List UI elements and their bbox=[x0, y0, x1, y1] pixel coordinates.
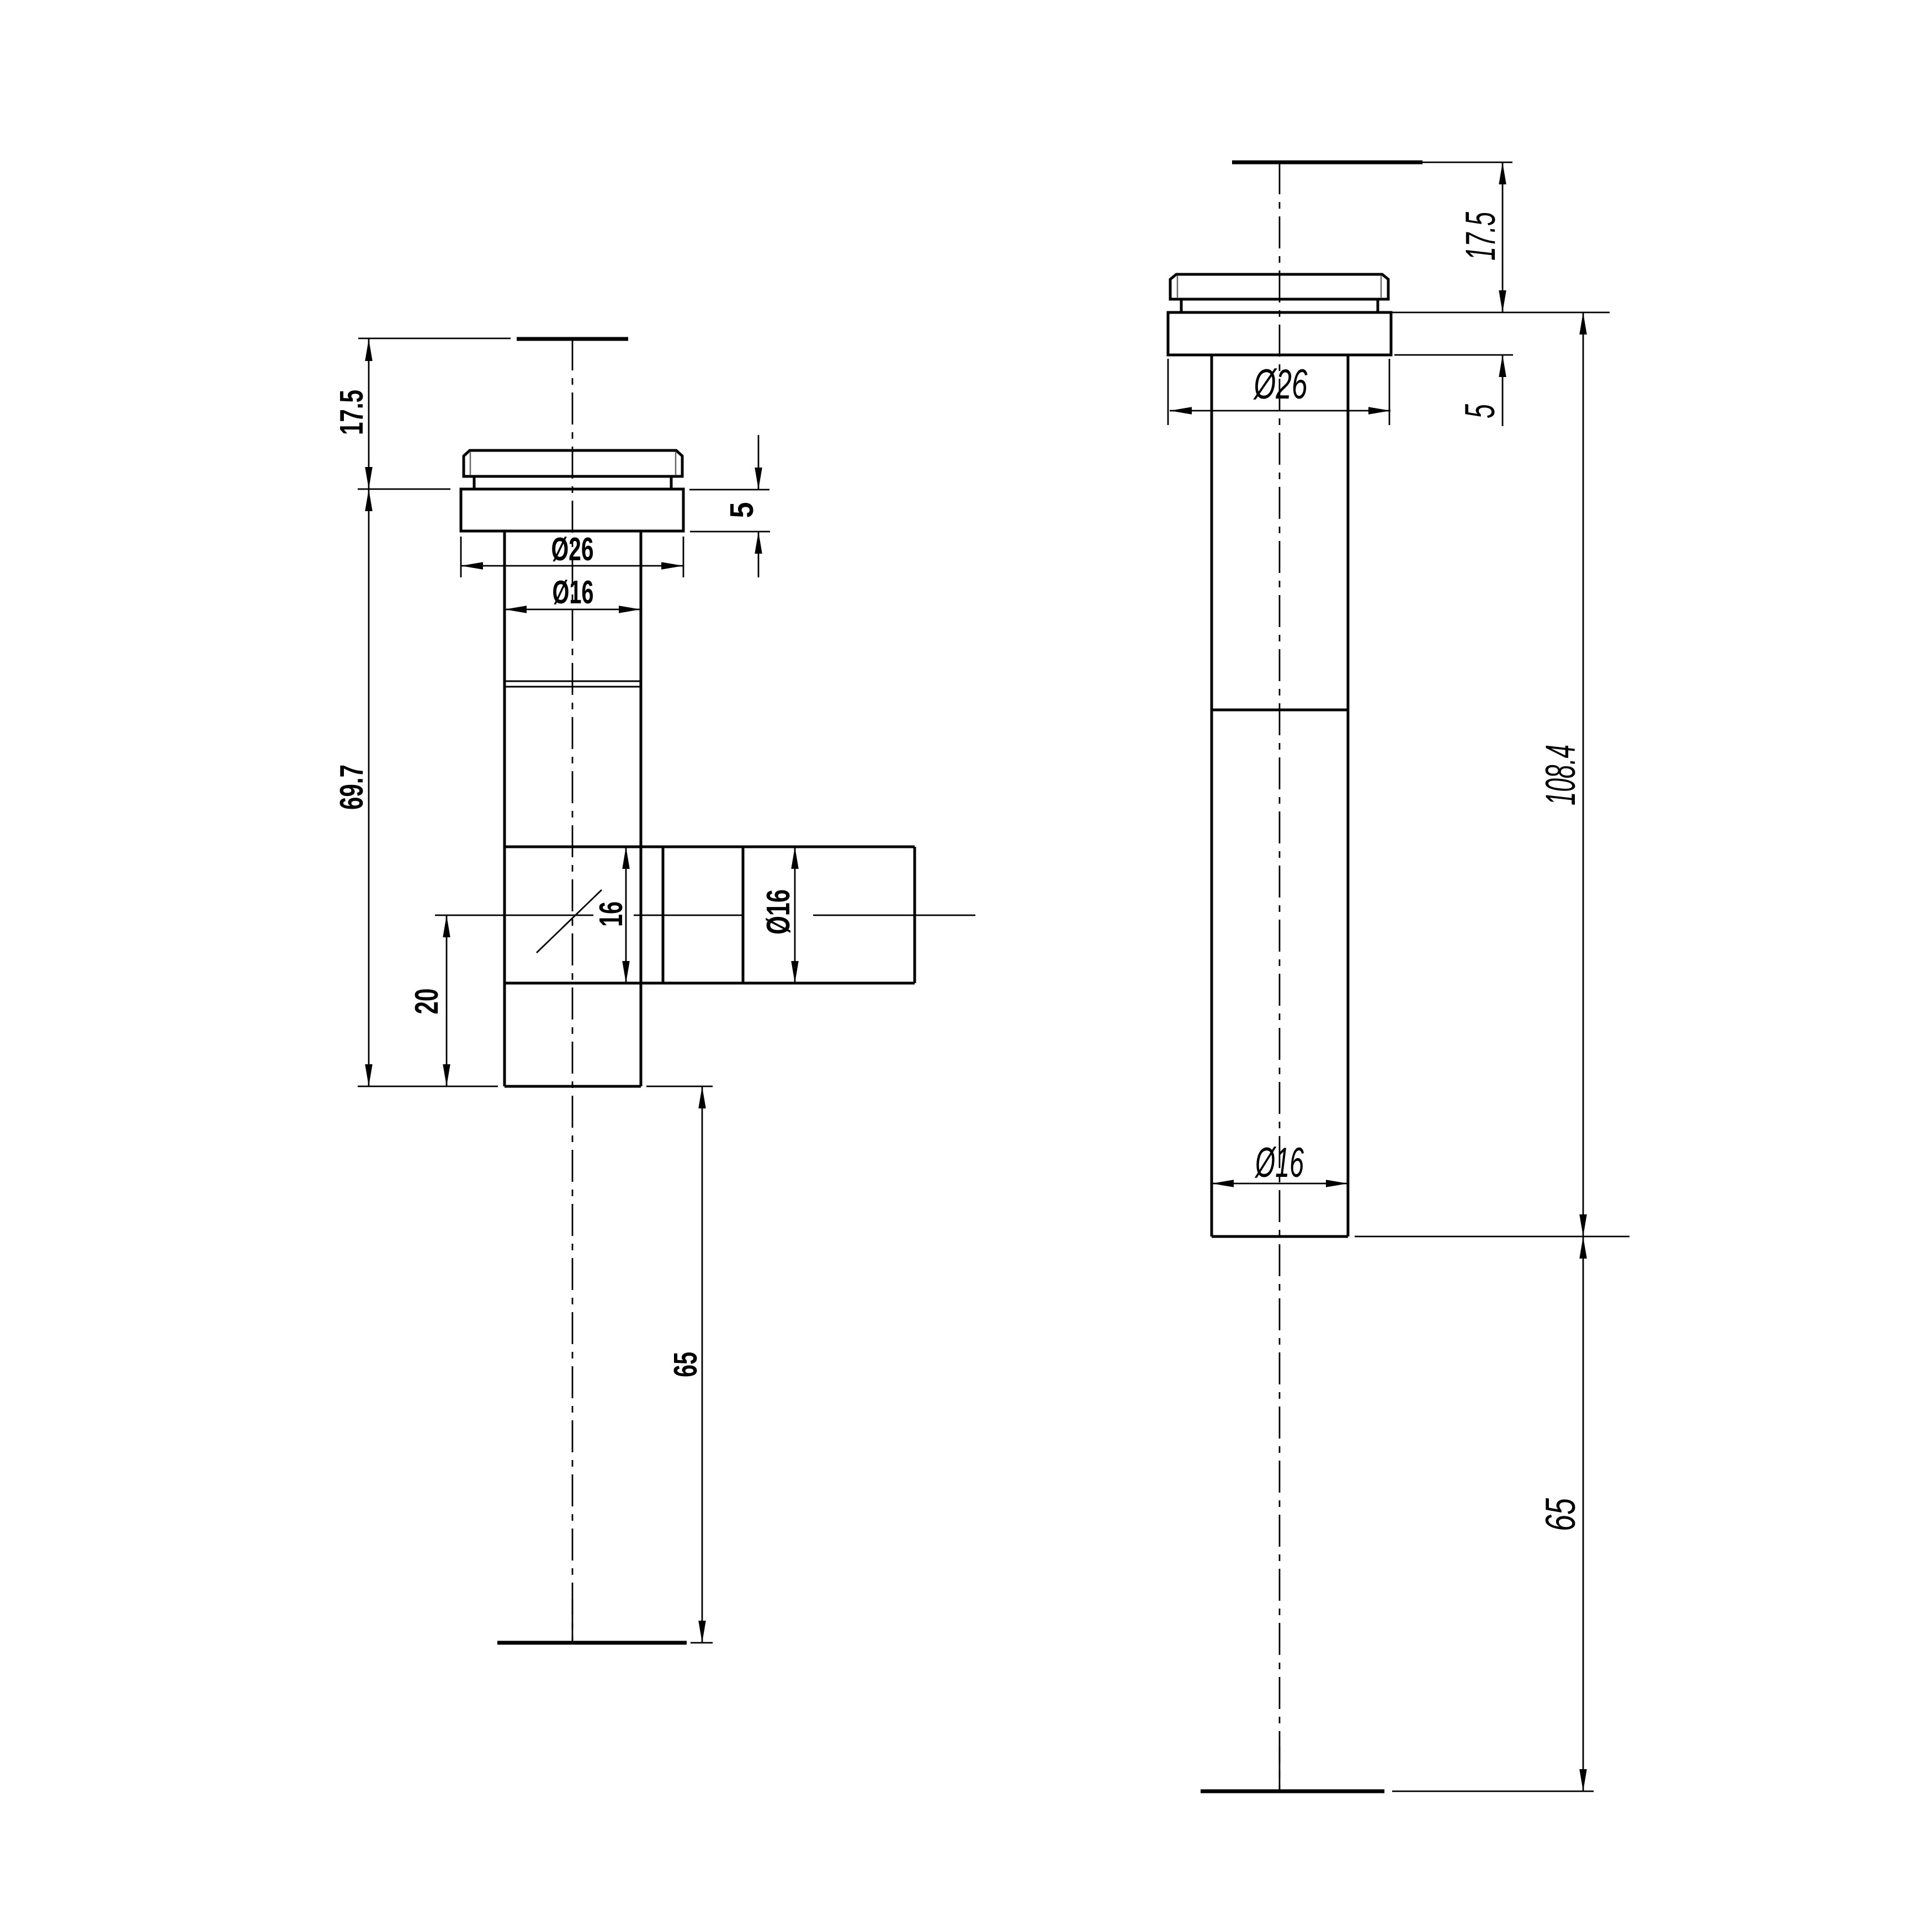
svg-text:Ø16: Ø16 bbox=[553, 574, 594, 611]
svg-text:108.4: 108.4 bbox=[1537, 745, 1584, 805]
svg-text:Ø16: Ø16 bbox=[760, 889, 797, 935]
svg-text:Ø16: Ø16 bbox=[1254, 1139, 1304, 1186]
svg-text:16: 16 bbox=[593, 901, 629, 927]
svg-text:65: 65 bbox=[1537, 1498, 1584, 1531]
svg-text:20: 20 bbox=[408, 989, 445, 1015]
svg-text:65: 65 bbox=[667, 1352, 704, 1377]
svg-text:Ø26: Ø26 bbox=[551, 531, 594, 567]
svg-text:17.5: 17.5 bbox=[333, 390, 370, 435]
svg-text:5: 5 bbox=[1457, 404, 1504, 418]
svg-text:Ø26: Ø26 bbox=[1252, 361, 1308, 408]
svg-text:69.7: 69.7 bbox=[333, 765, 370, 810]
svg-text:5: 5 bbox=[724, 502, 760, 518]
svg-text:17.5: 17.5 bbox=[1457, 212, 1504, 261]
